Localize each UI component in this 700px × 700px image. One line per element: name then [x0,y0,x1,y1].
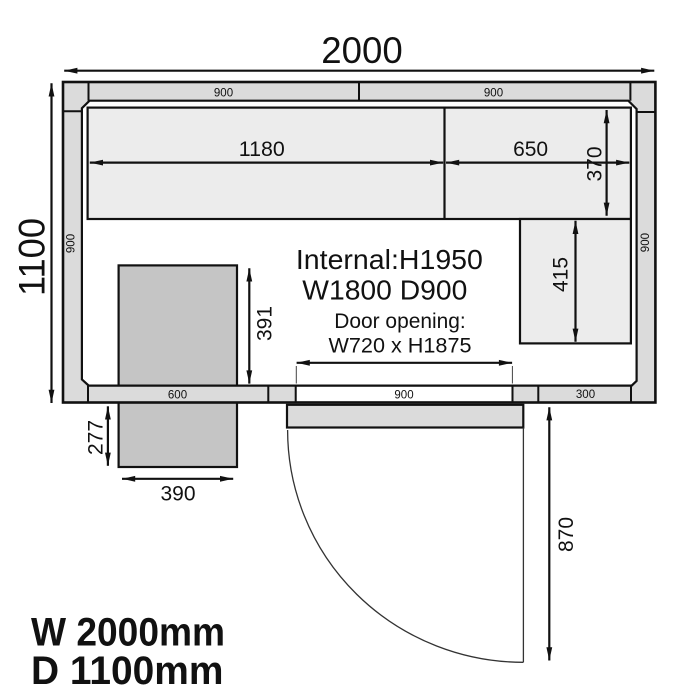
svg-text:600: 600 [168,389,187,401]
svg-text:Internal:H1950: Internal:H1950 [296,244,483,275]
svg-text:900: 900 [640,233,652,252]
svg-text:W1800 D900: W1800 D900 [302,275,467,306]
svg-text:650: 650 [513,138,548,161]
svg-text:370: 370 [584,146,607,181]
svg-text:W 2000mm: W 2000mm [31,611,225,655]
svg-text:1180: 1180 [239,138,285,161]
svg-text:391: 391 [254,306,277,341]
svg-text:900: 900 [66,234,78,253]
svg-text:390: 390 [160,483,195,506]
svg-text:2000: 2000 [321,29,403,71]
svg-text:870: 870 [555,517,578,552]
svg-text:D 1100mm: D 1100mm [31,649,224,693]
svg-text:900: 900 [394,389,413,401]
svg-text:Door opening:: Door opening: [334,310,466,333]
svg-text:900: 900 [484,87,503,99]
svg-text:415: 415 [550,257,573,292]
svg-text:W720 x H1875: W720 x H1875 [329,335,472,358]
svg-text:1100: 1100 [11,218,53,296]
svg-text:277: 277 [85,420,108,455]
svg-text:900: 900 [214,87,233,99]
svg-text:300: 300 [576,389,595,401]
